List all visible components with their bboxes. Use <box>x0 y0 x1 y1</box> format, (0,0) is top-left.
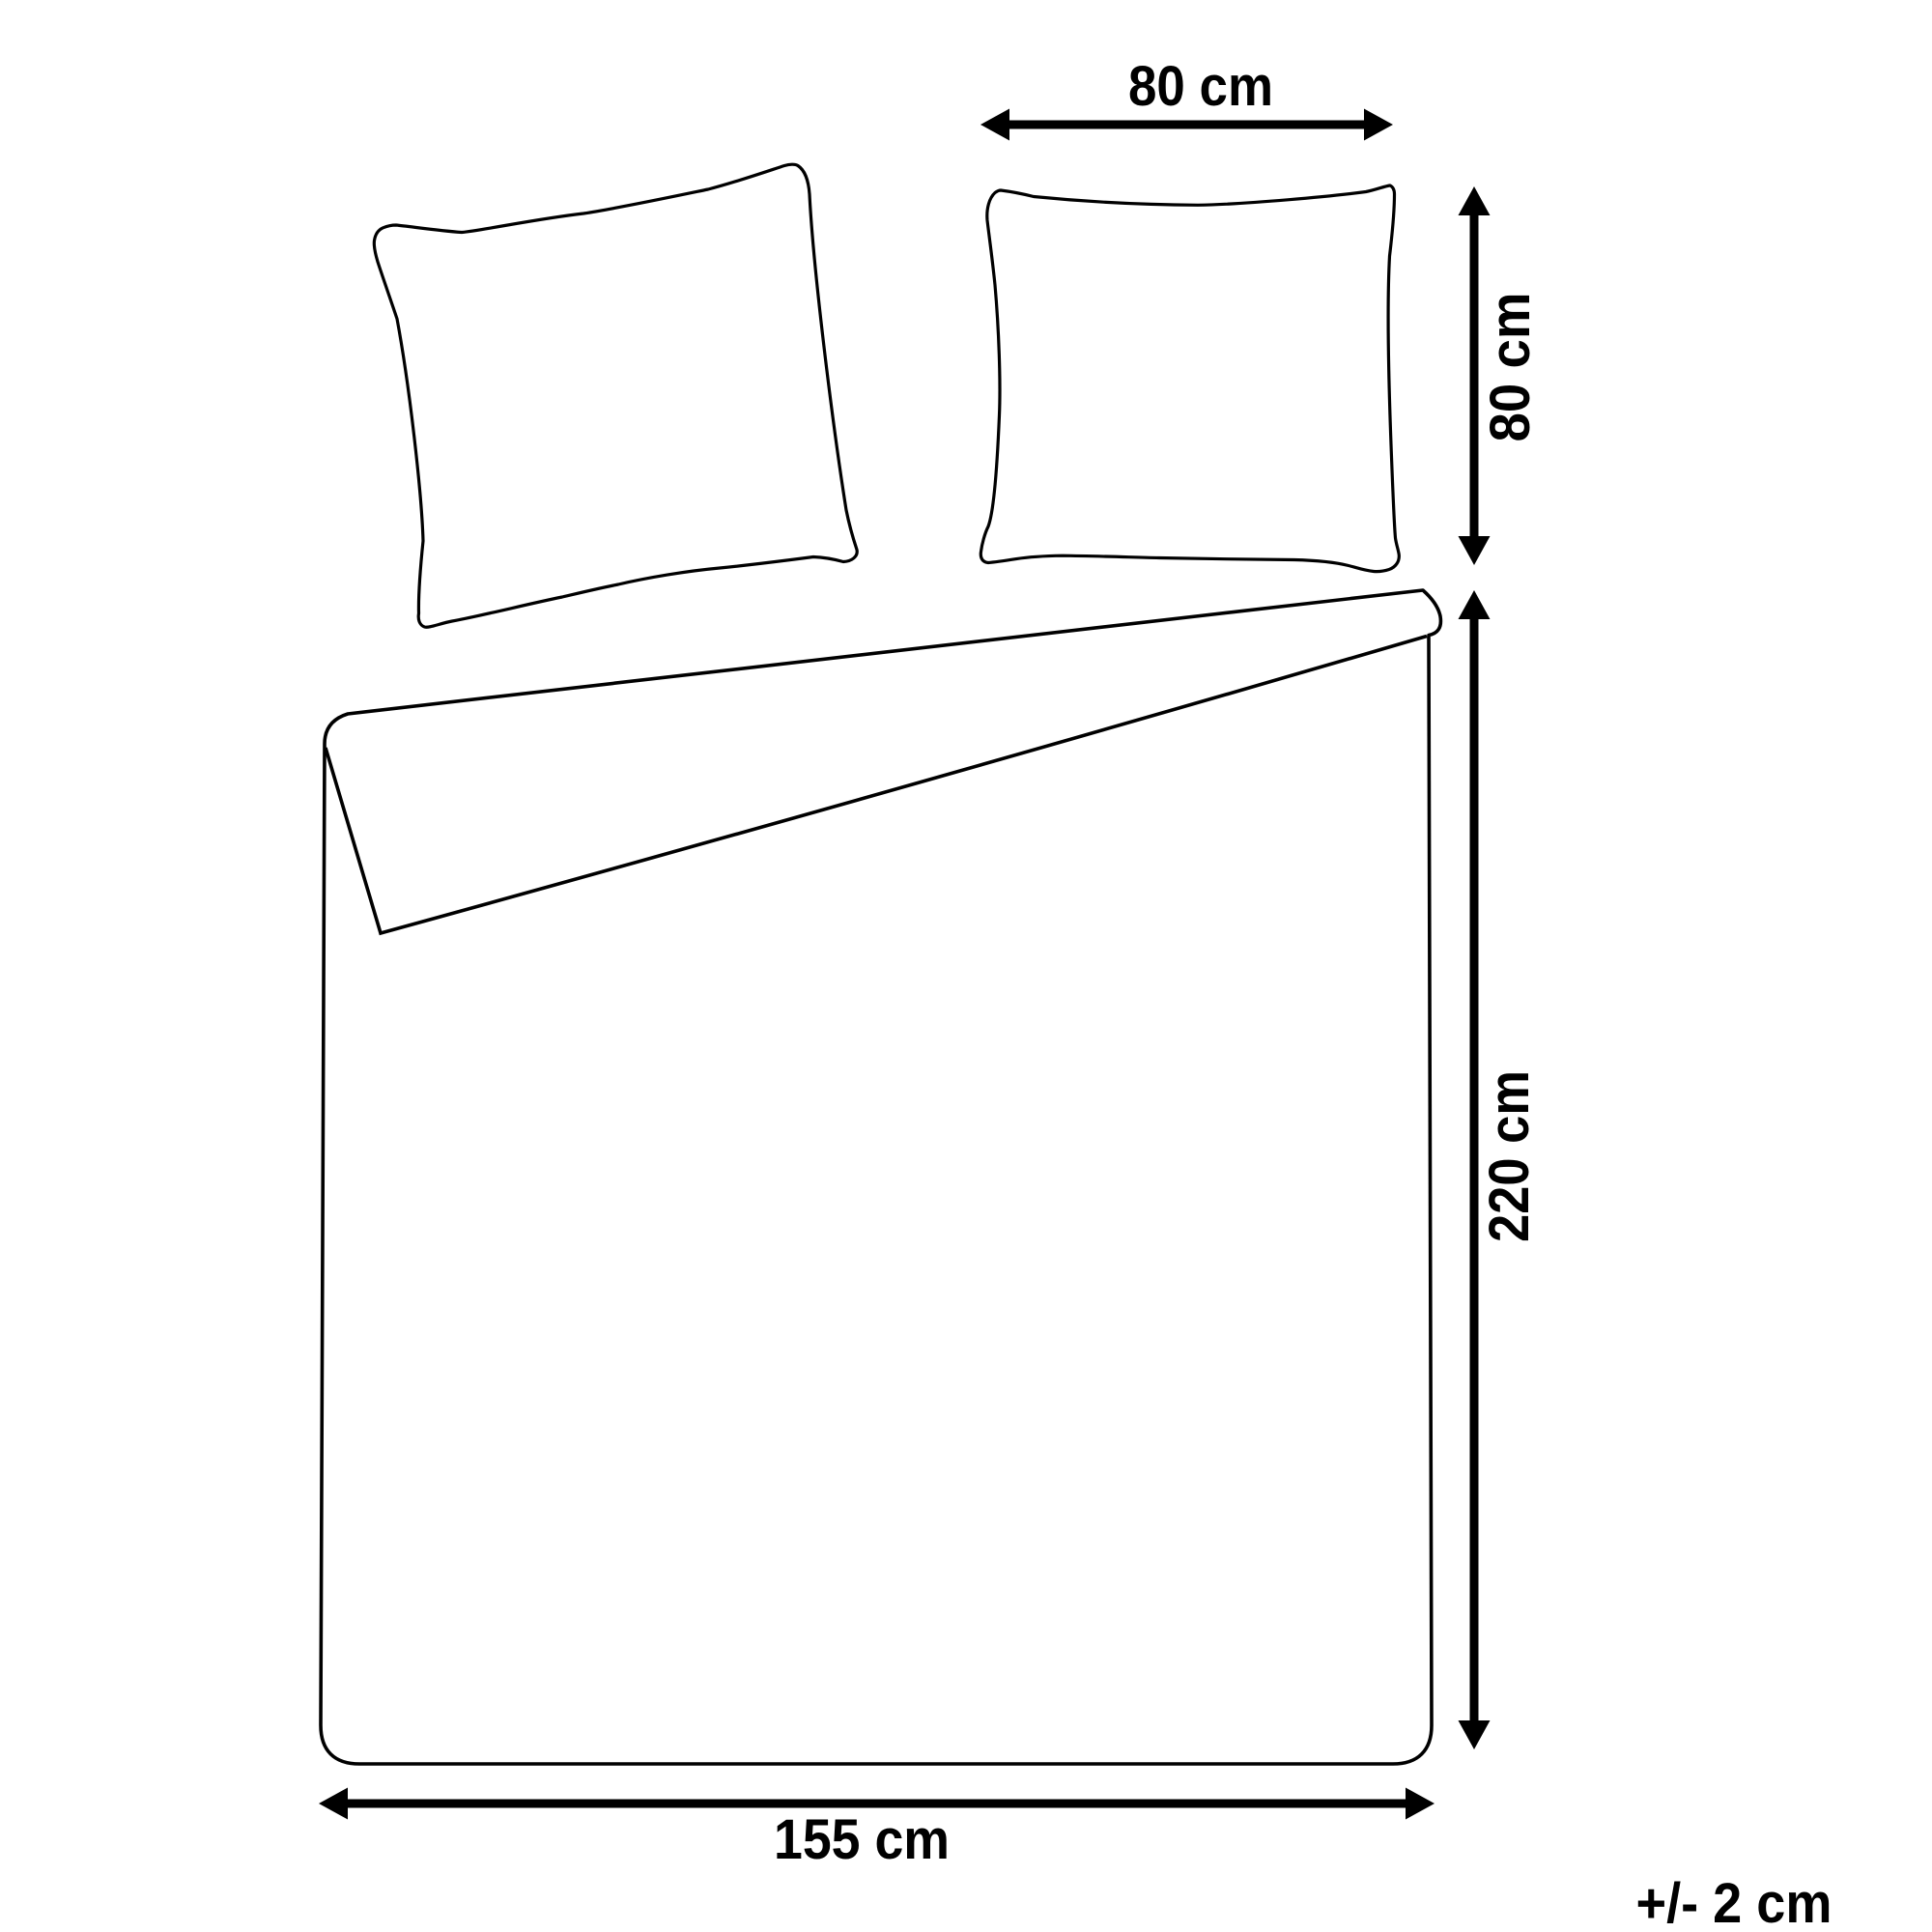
svg-text:220 cm: 220 cm <box>1478 1070 1541 1242</box>
svg-text:80 cm: 80 cm <box>1479 293 1542 442</box>
svg-text:80 cm: 80 cm <box>1128 55 1273 118</box>
svg-text:+/- 2 cm: +/- 2 cm <box>1636 1872 1833 1932</box>
svg-text:155 cm: 155 cm <box>774 1808 950 1871</box>
